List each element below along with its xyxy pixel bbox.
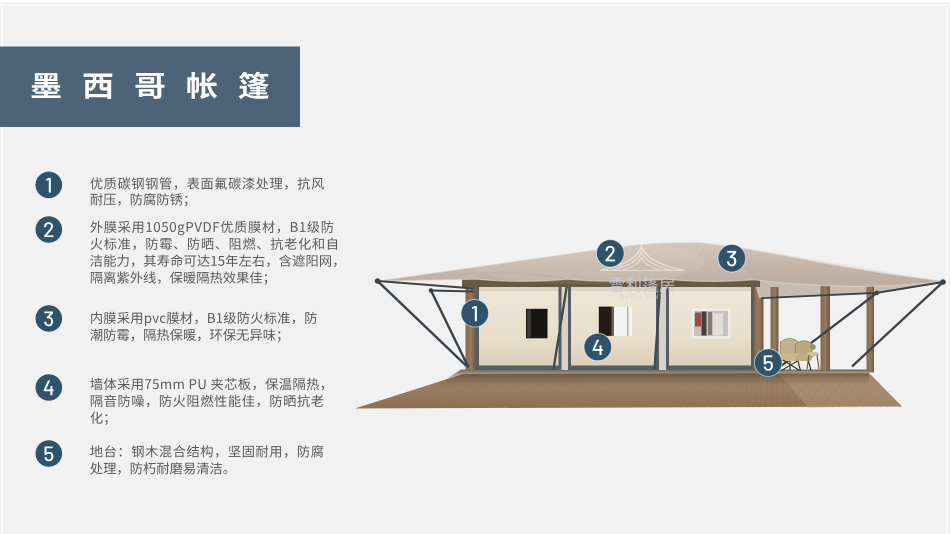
svg-text:XUELI TENT: XUELI TENT [620,295,663,301]
